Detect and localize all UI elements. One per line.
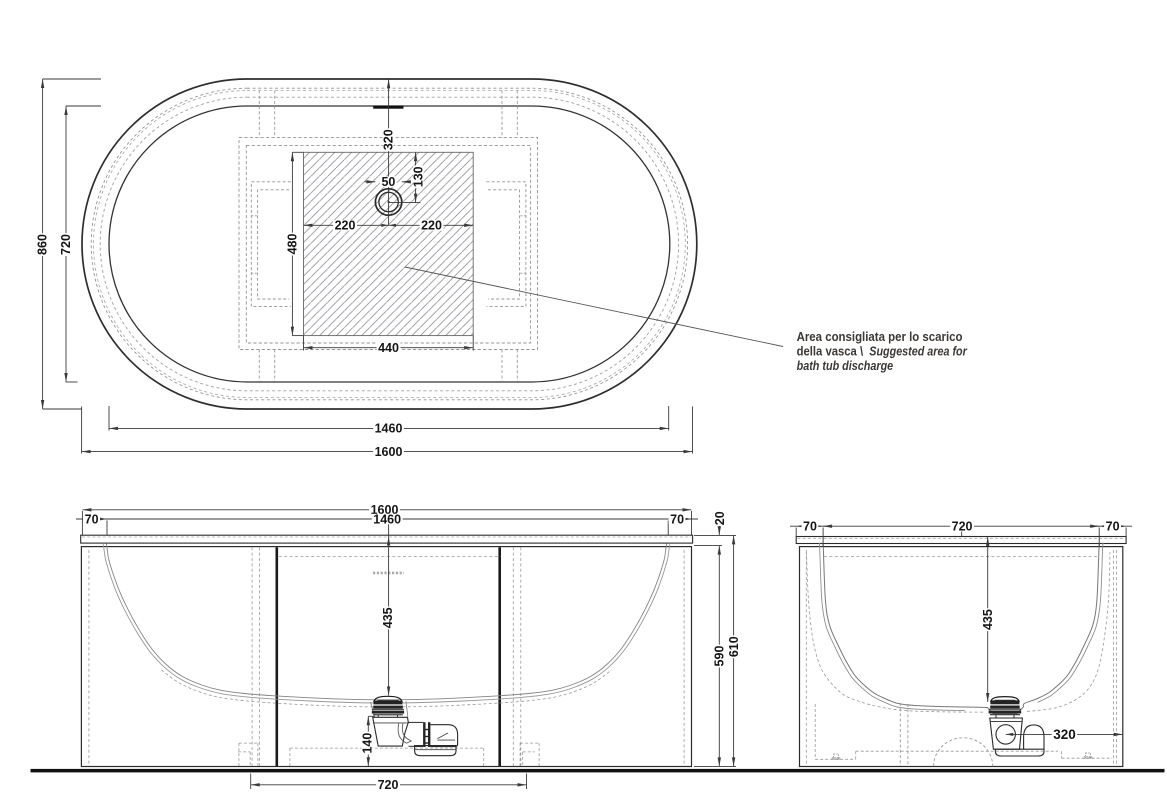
svg-text:435: 435: [381, 607, 395, 628]
svg-text:720: 720: [952, 520, 973, 534]
svg-text:435: 435: [981, 609, 995, 630]
svg-text:440: 440: [378, 341, 399, 355]
svg-text:590: 590: [713, 646, 727, 667]
svg-text:220: 220: [335, 219, 356, 233]
svg-text:860: 860: [36, 234, 50, 255]
svg-text:Area consigliata per lo scaric: Area consigliata per lo scarico: [797, 329, 963, 344]
svg-text:140: 140: [361, 733, 375, 754]
svg-text:720: 720: [59, 234, 73, 255]
svg-text:1460: 1460: [373, 512, 401, 526]
svg-text:480: 480: [286, 234, 300, 255]
svg-text:610: 610: [727, 636, 741, 657]
svg-text:70: 70: [803, 520, 817, 534]
svg-text:20: 20: [713, 511, 727, 525]
svg-text:bath tub discharge: bath tub discharge: [797, 358, 894, 373]
svg-text:50: 50: [381, 175, 395, 189]
svg-text:70: 70: [85, 512, 99, 526]
svg-text:Suggested area for: Suggested area for: [869, 343, 967, 358]
svg-text:1600: 1600: [375, 445, 403, 459]
svg-text:720: 720: [378, 778, 399, 792]
svg-text:320: 320: [1053, 727, 1076, 742]
svg-text:220: 220: [421, 219, 442, 233]
svg-text:320: 320: [382, 129, 396, 150]
svg-text:70: 70: [1106, 520, 1120, 534]
svg-text:130: 130: [412, 166, 426, 187]
svg-text:1460: 1460: [375, 422, 403, 436]
svg-text:70: 70: [670, 512, 684, 526]
svg-text:della vasca \: della vasca \: [797, 343, 864, 358]
